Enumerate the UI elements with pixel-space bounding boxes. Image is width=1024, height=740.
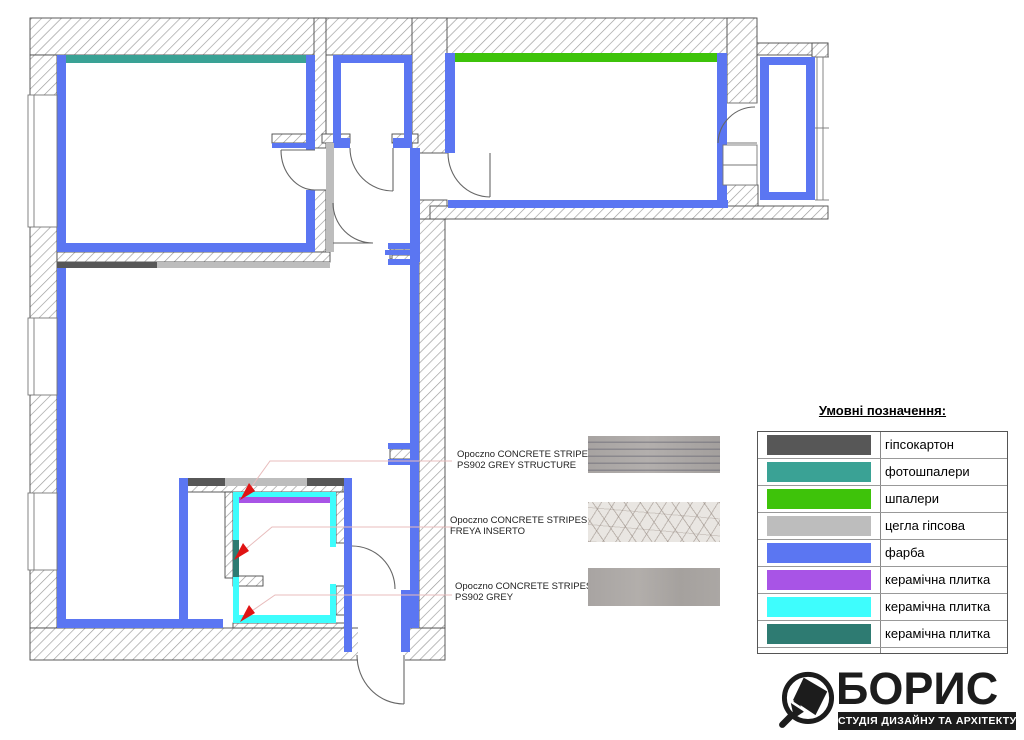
paintbrush-icon bbox=[778, 668, 838, 730]
legend-row: гіпсокартон bbox=[758, 432, 1007, 459]
legend-label: фотошпалери bbox=[885, 459, 970, 485]
legend-label: керамічна плитка bbox=[885, 567, 990, 593]
legend-row: шпалери bbox=[758, 486, 1007, 513]
legend-row: керамічна плитка bbox=[758, 567, 1007, 594]
hatched-walls bbox=[30, 18, 828, 660]
legend-row: керамічна плитка bbox=[758, 594, 1007, 621]
legend-label: фарба bbox=[885, 540, 925, 566]
legend-table: гіпсокартон фотошпалери шпалери цегла гі… bbox=[757, 431, 1008, 654]
material-brand: Opoczno CONCRETE STRIPES bbox=[455, 581, 592, 592]
legend-label: керамічна плитка bbox=[885, 594, 990, 620]
legend-row: цегла гіпсова bbox=[758, 513, 1007, 540]
legend-label: гіпсокартон bbox=[885, 432, 954, 458]
legend-title: Умовні позначення: bbox=[757, 403, 1008, 418]
material-label: Opoczno CONCRETE STRIPES FREYA INSERTO bbox=[450, 516, 587, 537]
material-label: Opoczno CONCRETE STRIPES PS902 GREY STRU… bbox=[457, 450, 594, 471]
legend-label: цегла гіпсова bbox=[885, 513, 965, 539]
material-swatch-structure bbox=[588, 436, 720, 473]
legend-swatch bbox=[767, 597, 871, 617]
legend-swatch bbox=[767, 489, 871, 509]
studio-logo: БОРИС СТУДІЯ ДИЗАЙНУ ТА АРХІТЕКТУРИ bbox=[770, 664, 1022, 736]
material-variant: PS902 GREY STRUCTURE bbox=[457, 460, 576, 471]
legend-row: фарба bbox=[758, 540, 1007, 567]
door-arcs bbox=[281, 107, 755, 704]
material-brand: Opoczno CONCRETE STRIPES bbox=[457, 449, 594, 460]
logo-tagline: СТУДІЯ ДИЗАЙНУ ТА АРХІТЕКТУРИ bbox=[838, 712, 1016, 730]
gypsum-finishes bbox=[57, 143, 344, 486]
legend-label: шпалери bbox=[885, 486, 939, 512]
material-label: Opoczno CONCRETE STRIPES PS902 GREY bbox=[455, 582, 592, 603]
logo-name: БОРИС bbox=[836, 666, 998, 712]
legend-swatch bbox=[767, 624, 871, 644]
legend-row: керамічна плитка bbox=[758, 621, 1007, 648]
material-brand: Opoczno CONCRETE STRIPES bbox=[450, 515, 587, 526]
photo-wallpaper-strip bbox=[66, 55, 306, 63]
ceramic-tile-finishes bbox=[233, 492, 336, 623]
legend-label: керамічна плитка bbox=[885, 621, 990, 647]
legend-swatch bbox=[767, 543, 871, 563]
floor-plan-sheet: { "colors": { "blue": "#5B76F2", "teal":… bbox=[0, 0, 1024, 740]
legend-swatch bbox=[767, 462, 871, 482]
entrance-opening bbox=[358, 627, 405, 661]
legend-swatch bbox=[767, 435, 871, 455]
material-swatch-mosaic bbox=[588, 502, 720, 542]
material-variant: PS902 GREY bbox=[455, 592, 513, 603]
wallpaper-strip bbox=[455, 53, 717, 62]
legend-swatch bbox=[767, 570, 871, 590]
legend-row: фотошпалери bbox=[758, 459, 1007, 486]
legend-swatch bbox=[767, 516, 871, 536]
material-swatch-plain bbox=[588, 568, 720, 606]
material-variant: FREYA INSERTO bbox=[450, 526, 525, 537]
